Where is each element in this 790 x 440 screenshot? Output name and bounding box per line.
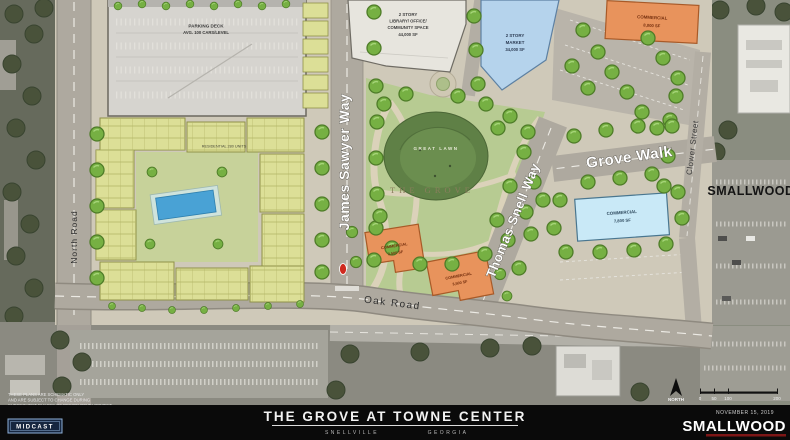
building-residential-complex	[96, 118, 304, 302]
smallwood-watermark: SMALLWOOD	[707, 184, 790, 198]
scale-tick-50: 50	[711, 396, 717, 401]
footer-bar: NOVEMBER 15, 2019 THE GROVE AT TOWNE CEN…	[0, 405, 790, 440]
label-library-2: LIBRARY/ OFFICE/	[389, 19, 427, 24]
site-plan-svg: PARKING DECK AVG. 100 CARS/LEVEL RESIDEN…	[0, 0, 790, 440]
site-plan-canvas: PARKING DECK AVG. 100 CARS/LEVEL RESIDEN…	[0, 0, 790, 440]
plan-subtitle-state: GEORGIA	[428, 430, 469, 436]
label-commercial-ne-2: 8,000 SF	[643, 23, 661, 29]
street-label-north-road: North Road	[69, 210, 79, 263]
midcast-logo-text: MIDCAST	[16, 425, 54, 431]
label-parking-deck-capacity: AVG. 100 CARS/LEVEL	[183, 30, 229, 35]
building-commercial-east	[575, 193, 670, 241]
road-north-road	[57, 0, 91, 325]
scale-tick-200: 200	[773, 396, 781, 401]
label-residential: RESIDENTIAL 280 UNITS	[202, 145, 247, 149]
smallwood-logo-text: SMALLWOOD	[682, 418, 786, 435]
label-market-1: 2 STORY	[506, 33, 525, 38]
label-market-2: MARKET	[506, 40, 525, 45]
building-parking-deck	[108, 0, 306, 116]
north-label: NORTH	[668, 397, 684, 402]
label-great-lawn: GREAT LAWN	[414, 146, 459, 151]
scale-tick-100: 100	[724, 396, 732, 401]
plan-title: THE GROVE AT TOWNE CENTER	[264, 409, 527, 424]
disclaimer-line-1: THESE PLANS ARE SCHEMATIC ONLY	[8, 392, 84, 397]
smallwood-logo: SMALLWOOD	[682, 418, 786, 437]
label-the-grove: THE GROVE	[390, 185, 474, 195]
label-library-1: 2 STORY	[399, 12, 418, 17]
plan-date: NOVEMBER 15, 2019	[716, 410, 774, 416]
midcast-logo: MIDCAST	[8, 419, 62, 433]
disclaimer-line-2: AND ARE SUBJECT TO CHANGE DURING	[8, 398, 90, 403]
label-library-4: 44,000 SF	[398, 32, 418, 37]
label-market-3: 34,000 SF	[505, 47, 525, 52]
street-label-james-sawyer-way: James Sawyer Way	[336, 94, 352, 231]
label-library-3: COMMUNITY SPACE	[387, 25, 428, 30]
traffic-signal-marker	[340, 264, 347, 275]
plan-subtitle-city: SNELLVILLE	[325, 430, 379, 436]
label-parking-deck: PARKING DECK	[188, 24, 224, 29]
